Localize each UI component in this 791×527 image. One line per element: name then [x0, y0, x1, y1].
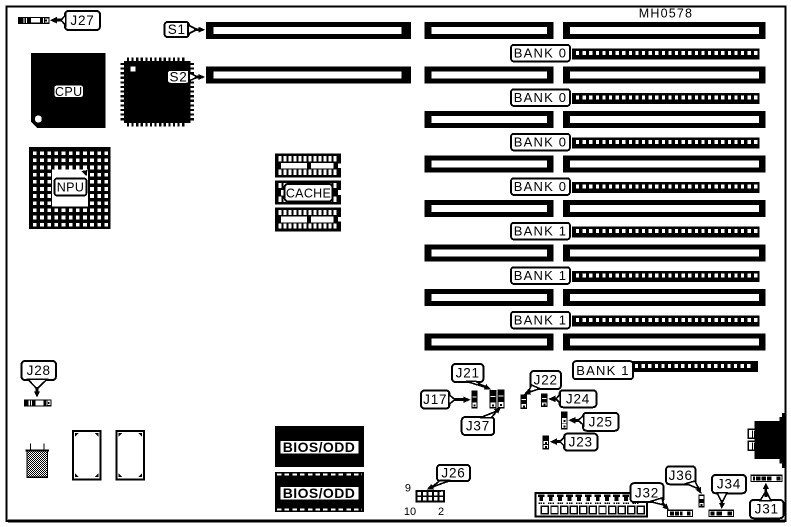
svg-text:J31: J31	[755, 502, 779, 517]
svg-text:9: 9	[405, 483, 411, 495]
svg-text:BANK 1: BANK 1	[576, 363, 629, 378]
svg-text:J17: J17	[423, 392, 447, 407]
svg-text:J37: J37	[466, 419, 490, 434]
svg-text:J24: J24	[566, 391, 590, 406]
svg-text:BANK 1: BANK 1	[514, 313, 567, 328]
svg-text:J25: J25	[589, 414, 613, 429]
svg-text:MH0578: MH0578	[639, 7, 693, 21]
svg-text:CACHE: CACHE	[286, 186, 331, 200]
svg-text:J26: J26	[441, 466, 465, 481]
svg-text:BIOS/ODD: BIOS/ODD	[283, 439, 355, 455]
svg-text:J28: J28	[27, 363, 51, 378]
svg-text:BANK 0: BANK 0	[514, 46, 567, 61]
svg-text:J36: J36	[669, 468, 693, 483]
svg-text:J34: J34	[717, 477, 741, 492]
svg-text:BIOS/ODD: BIOS/ODD	[283, 485, 355, 501]
svg-text:NPU: NPU	[57, 181, 85, 195]
svg-text:S1: S1	[168, 22, 186, 37]
svg-text:CPU: CPU	[55, 85, 83, 99]
svg-text:10: 10	[404, 506, 416, 518]
svg-text:J23: J23	[569, 435, 593, 450]
svg-text:BANK 0: BANK 0	[514, 179, 567, 194]
svg-text:BANK 1: BANK 1	[514, 268, 567, 283]
svg-text:J21: J21	[456, 366, 480, 381]
svg-text:S2: S2	[169, 69, 187, 84]
svg-text:BANK 0: BANK 0	[514, 135, 567, 150]
svg-text:J32: J32	[635, 485, 659, 500]
svg-text:BANK 0: BANK 0	[514, 90, 567, 105]
svg-text:J27: J27	[70, 13, 94, 28]
svg-text:2: 2	[438, 506, 444, 518]
svg-text:BANK 1: BANK 1	[514, 224, 567, 239]
svg-text:J22: J22	[534, 373, 558, 388]
